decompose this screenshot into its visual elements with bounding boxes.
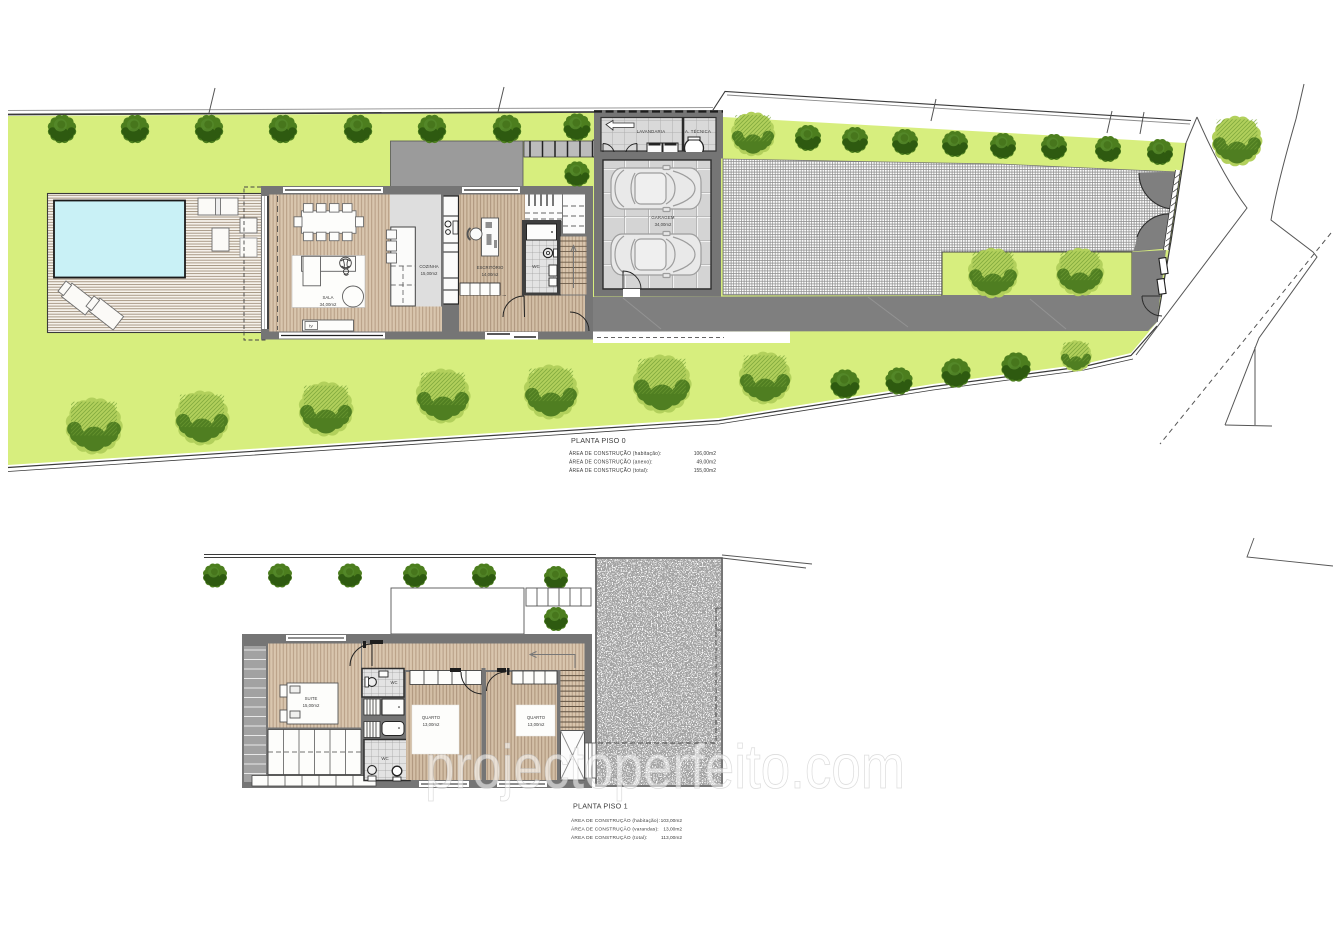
- svg-text:QUARTO: QUARTO: [422, 715, 441, 720]
- svg-text:34,00m2: 34,00m2: [320, 302, 337, 307]
- svg-text:103,00m2: 103,00m2: [661, 818, 683, 824]
- svg-text:106,00m2: 106,00m2: [694, 451, 716, 457]
- svg-text:14,00m2: 14,00m2: [482, 272, 499, 277]
- svg-text:WC: WC: [381, 756, 388, 761]
- svg-text:PLANTA PISO 1: PLANTA PISO 1: [573, 802, 628, 811]
- svg-text:15,00m2: 15,00m2: [421, 271, 438, 276]
- svg-text:13,00m2: 13,00m2: [423, 722, 440, 727]
- svg-text:ÁREA DE CONSTRUÇÃO (total):: ÁREA DE CONSTRUÇÃO (total):: [569, 467, 649, 474]
- svg-text:PLANTA PISO 0: PLANTA PISO 0: [571, 436, 626, 445]
- svg-text:GARAGEM: GARAGEM: [651, 215, 675, 220]
- svg-text:SALA: SALA: [323, 295, 334, 300]
- svg-text:34,00m2: 34,00m2: [655, 222, 672, 227]
- svg-text:ÁREA DE CONSTRUÇÃO (habitação): ÁREA DE CONSTRUÇÃO (habitação):: [571, 817, 660, 824]
- svg-text:projectoperfeito.com: projectoperfeito.com: [425, 733, 905, 802]
- svg-text:QUARTO: QUARTO: [527, 715, 546, 720]
- svg-text:ÁREA DE CONSTRUÇÃO (habitação): ÁREA DE CONSTRUÇÃO (habitação):: [569, 450, 662, 457]
- svg-text:ÁREA DE CONSTRUÇÃO (anexo):: ÁREA DE CONSTRUÇÃO (anexo):: [569, 459, 653, 466]
- svg-text:49,00m2: 49,00m2: [697, 460, 717, 466]
- svg-text:A. TÉCNICA: A. TÉCNICA: [685, 129, 711, 134]
- svg-text:LAVANDARIA: LAVANDARIA: [637, 129, 666, 134]
- svg-text:113,00m2: 113,00m2: [661, 835, 682, 841]
- svg-text:ÁREA DE CONSTRUÇÃO (total):: ÁREA DE CONSTRUÇÃO (total):: [571, 834, 648, 841]
- svg-text:WC: WC: [532, 264, 540, 269]
- svg-text:ÁREA DE CONSTRUÇÃO (varandas):: ÁREA DE CONSTRUÇÃO (varandas):: [571, 826, 659, 833]
- svg-text:13,00m2: 13,00m2: [663, 827, 682, 833]
- svg-text:SUITE: SUITE: [305, 696, 318, 701]
- svg-text:COZINHA: COZINHA: [419, 264, 438, 269]
- svg-text:13,00m2: 13,00m2: [528, 722, 545, 727]
- svg-text:ESCRITÓRIO: ESCRITÓRIO: [477, 265, 504, 270]
- svg-text:155,00m2: 155,00m2: [694, 468, 716, 474]
- svg-text:15,00m2: 15,00m2: [303, 703, 320, 708]
- svg-text:WC: WC: [391, 680, 398, 685]
